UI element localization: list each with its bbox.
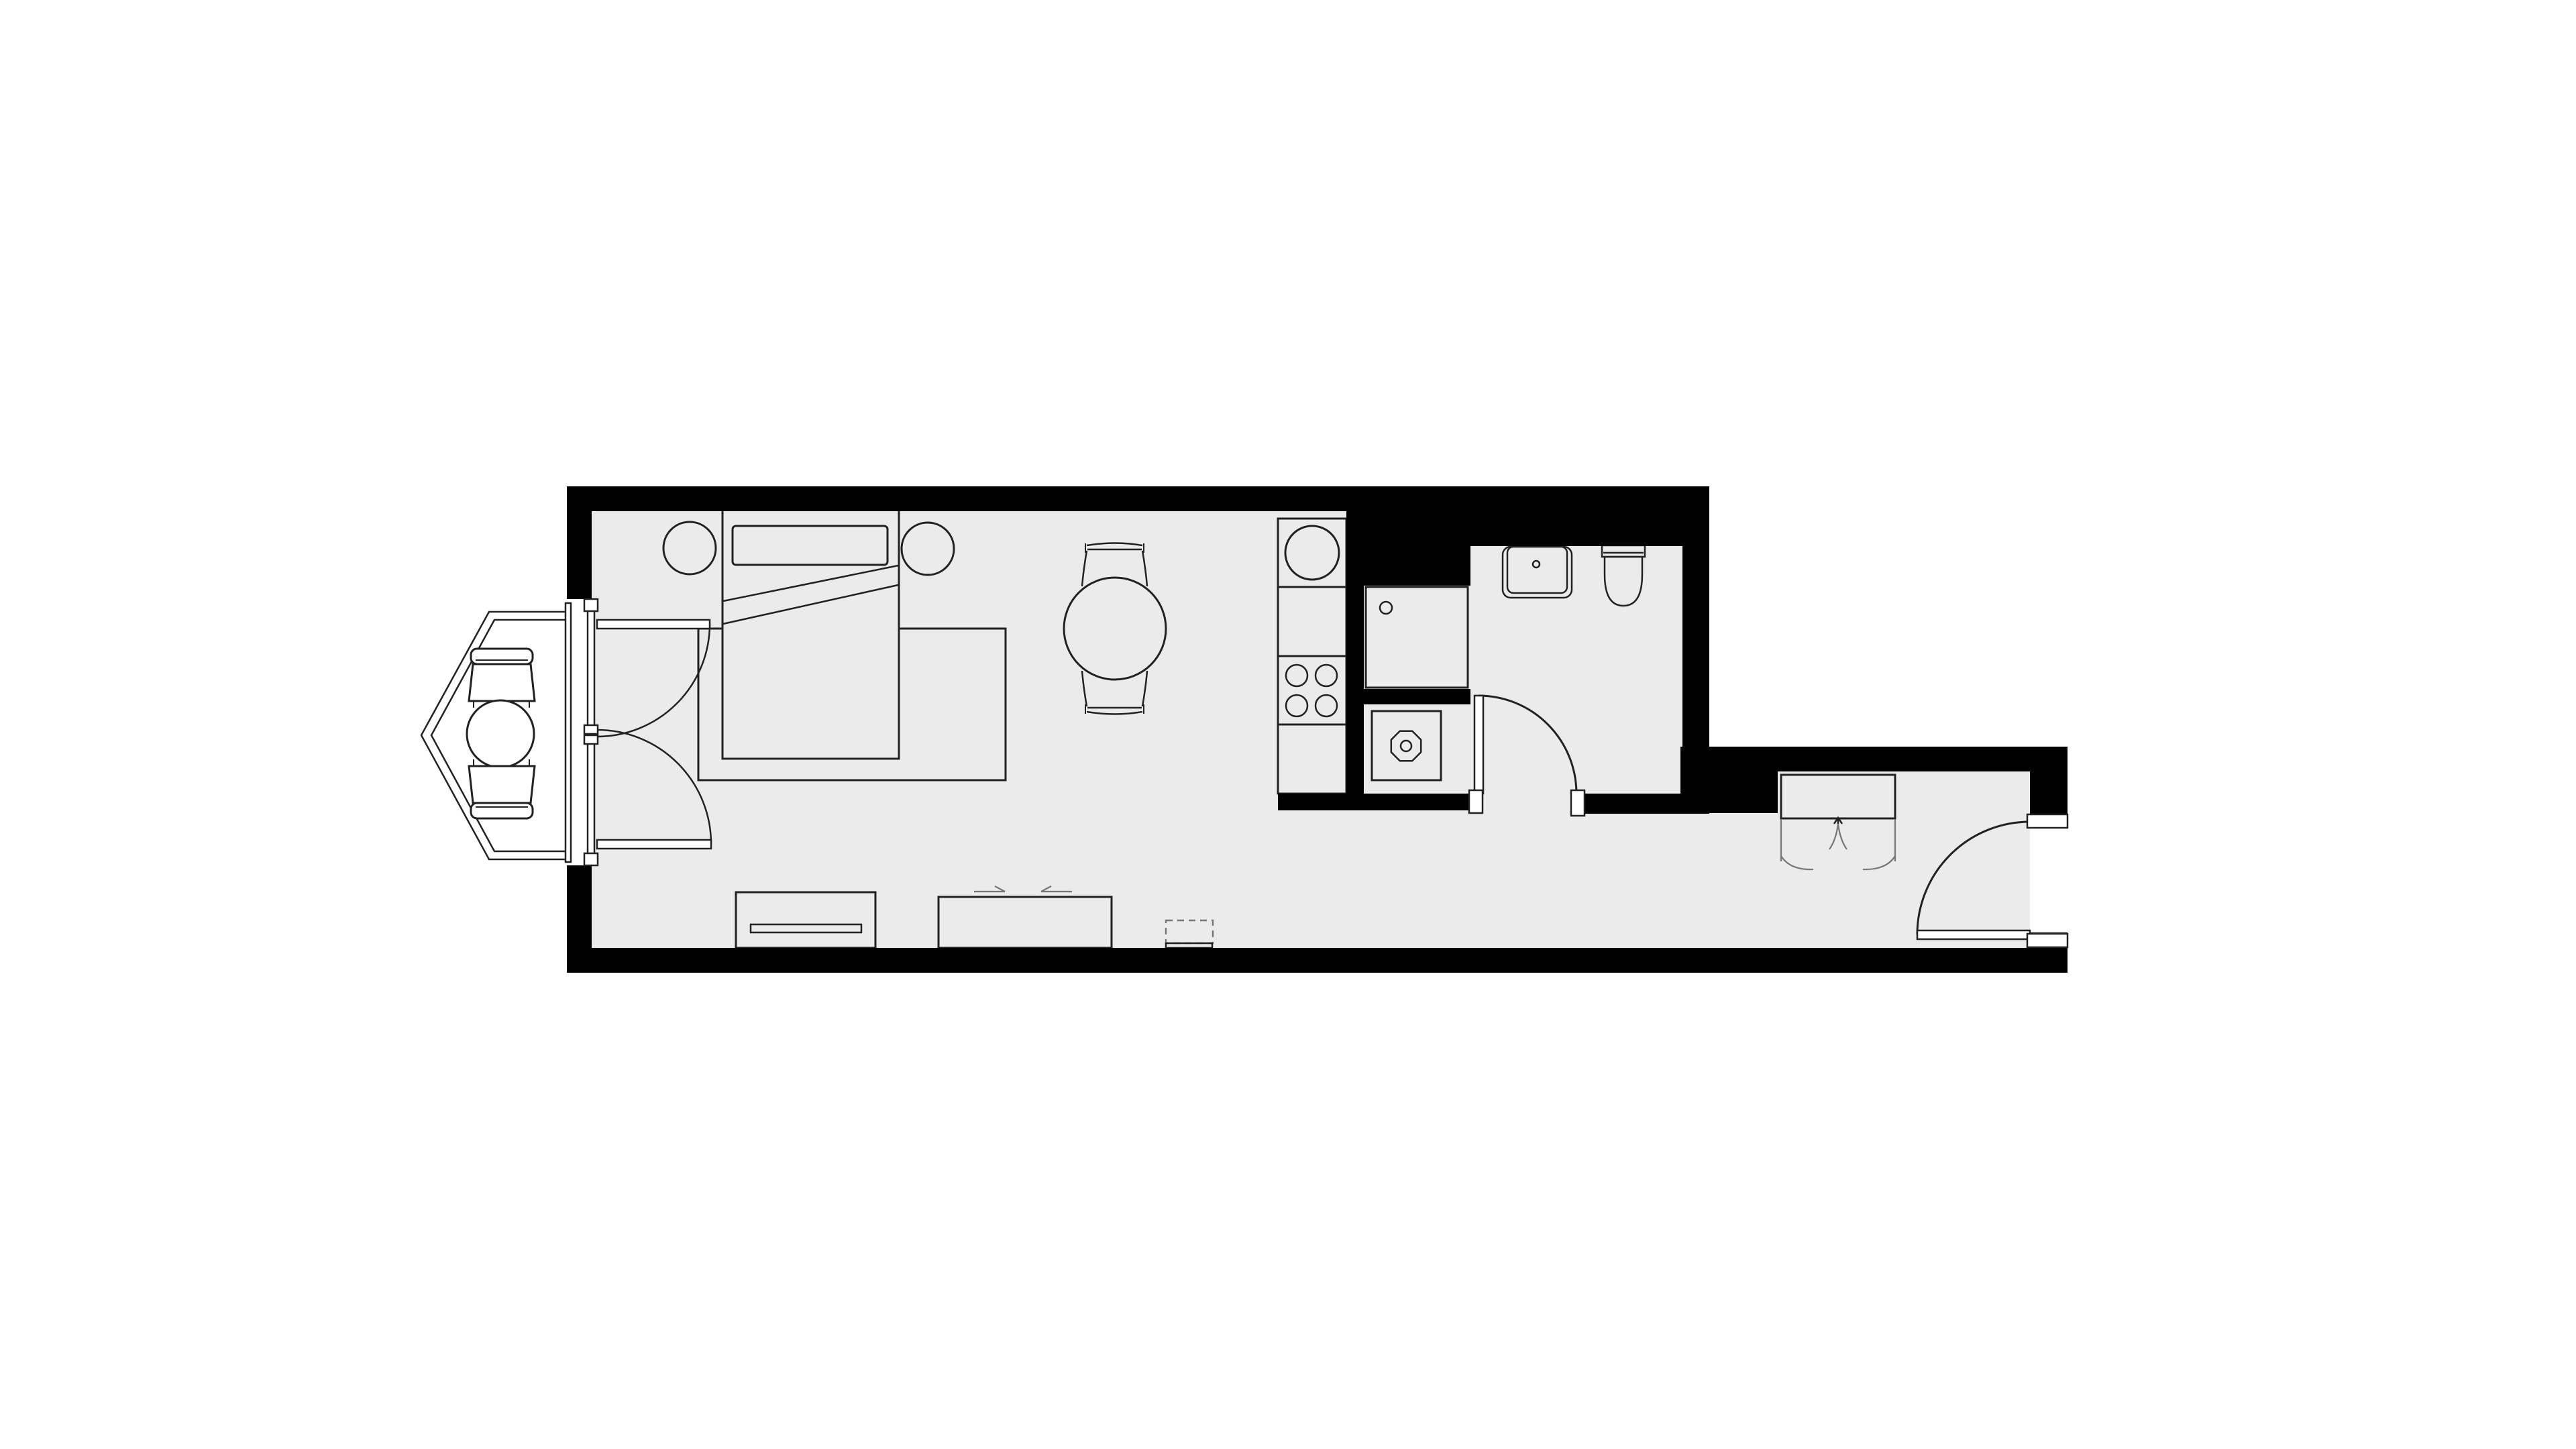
kitchen-counter [1278,724,1346,794]
wall-bathroom-right [1682,486,1709,747]
floor-plan [0,0,2576,1449]
hallway-floor [1346,810,2030,948]
shower-niche-floor [1364,586,1470,689]
chair-backrest [471,803,533,818]
chair-seat [469,766,535,803]
bathroom-door-jamb-left [1469,790,1483,813]
kitchenette [1278,519,1346,794]
main-room-floor [592,510,1346,948]
french-door-bottom-leaf [597,840,711,849]
bay-chair-bottom [469,759,535,818]
chair-backrest [471,649,533,664]
window-assembly [566,599,598,865]
wall-above-shower [1364,486,1470,586]
kitchen-counter [1278,587,1346,656]
window-jamb-middle [584,735,598,744]
window-jamb-middle [584,725,598,734]
french-door-top-leaf [597,620,710,629]
wall-kitchen-right [1346,486,1364,794]
bay-chair-top [469,649,535,708]
wall-bathroom-top [1470,486,1684,546]
kitchen-sink-counter [1278,519,1346,587]
wall-hallway-top [1709,747,2068,771]
window-jamb-top [584,599,598,611]
dining-table [1064,578,1166,680]
entrance-door-leaf [1917,930,2030,939]
page-background [0,0,2576,1449]
nightstand-right [902,523,954,575]
window-glazing-outer [566,603,571,862]
wall-bottom [567,948,2068,973]
wall-stub-left-of-bath-door [1278,794,1474,810]
wall-left-upper [567,486,592,599]
wall-niche-divider [1364,689,1470,704]
bathroom-door-leaf [1474,696,1483,794]
sideboard [736,892,875,948]
wardrobe-body [1781,775,1895,818]
bay-window [421,612,568,859]
nightstand-left [663,522,716,574]
bay-table [467,700,534,767]
bathroom-door-jamb-right [1571,790,1585,816]
sliding-cabinet [938,897,1112,948]
cooktop-counter [1278,656,1346,724]
bed-pillow [733,526,888,565]
bay-seating [467,649,535,818]
entrance-door-jamb-top [2027,814,2068,828]
window-jamb-bottom [584,853,598,865]
entrance-door-jamb-bottom [2027,934,2068,947]
chair-seat [469,664,535,701]
bathroom-doorway-floor [1474,794,1574,812]
